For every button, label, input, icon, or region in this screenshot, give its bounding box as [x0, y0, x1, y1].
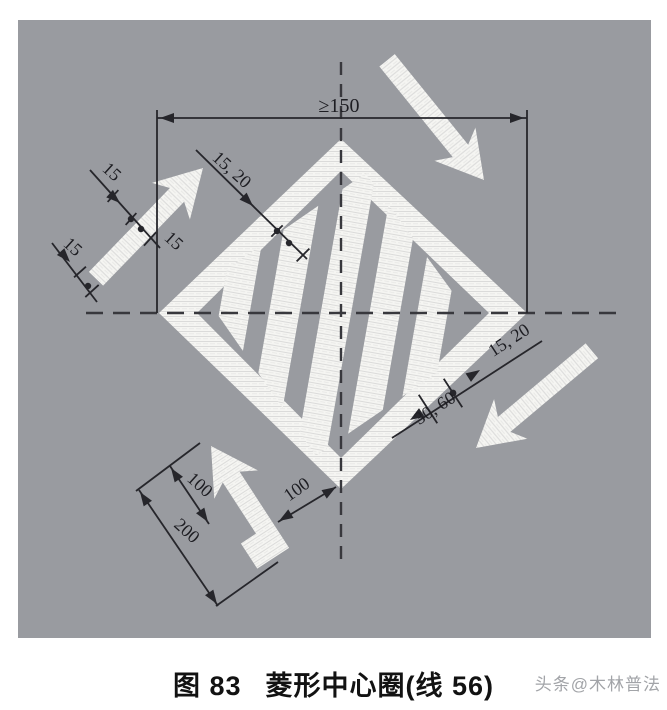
dim-node-dot [85, 283, 91, 289]
dim-node-dot [286, 240, 292, 246]
road-marking-diagram: ≥150 15, 20 15 15 15 15, 20 30, 60 100 2… [0, 0, 667, 710]
figure-page: ≥150 15, 20 15 15 15 15, 20 30, 60 100 2… [0, 0, 667, 710]
dim-node-dot [138, 226, 144, 232]
dim-label-top-width: ≥150 [319, 95, 360, 117]
figure-title: 菱形中心圈(线 56) [266, 671, 495, 701]
watermark: 头条@木林普法 [535, 670, 661, 695]
figure-number: 图 83 [173, 671, 242, 701]
